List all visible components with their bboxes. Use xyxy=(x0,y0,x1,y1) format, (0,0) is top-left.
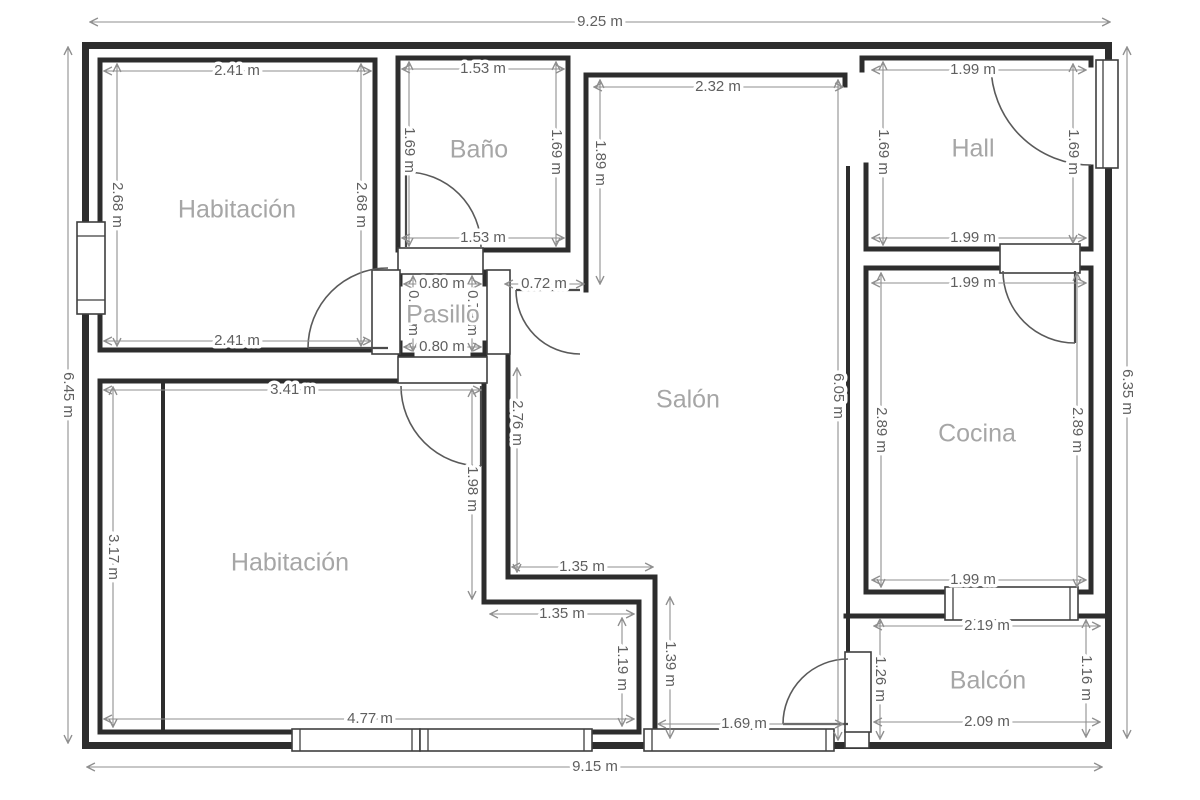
outer-wall-top xyxy=(82,42,1112,49)
dim-label-total-left: 6.45 m xyxy=(60,372,77,418)
door-cocina xyxy=(1003,271,1075,343)
window-cocina-balcon xyxy=(945,587,1078,620)
floor-plan-drawing: 9.25 m 6.45 m 6.35 m 9.15 m 2.41 m 2.68 … xyxy=(0,0,1200,800)
dim-label-hall-top: 1.99 m xyxy=(950,61,996,78)
room-label-habitacion-tl: Habitación xyxy=(178,196,296,224)
dim-label-habbl-alcove-width: 1.35 m xyxy=(539,605,585,622)
room-label-salon: Salón xyxy=(656,386,720,414)
window-bottom-left-b xyxy=(420,729,592,751)
dim-label-habtl-bottom: 2.41 m xyxy=(214,332,260,349)
dim-label-total-right: 6.35 m xyxy=(1119,369,1136,415)
dim-label-cocina-left: 2.89 m xyxy=(873,407,890,453)
dim-label-salon-lower-right: 1.39 m xyxy=(662,641,679,687)
door-frame-pasillo-habitacion-tl xyxy=(372,270,400,354)
door-frame-pasillo-bano xyxy=(398,248,483,274)
dim-label-salon-step: 1.35 m xyxy=(559,558,605,575)
wall-salon-step xyxy=(508,352,655,742)
dim-label-habbl-bottom: 4.77 m xyxy=(347,710,393,727)
room-label-pasillo: Pasillo xyxy=(406,301,480,329)
dim-label-salon-upper-left: 1.89 m xyxy=(592,140,609,186)
dim-label-habtl-right: 2.68 m xyxy=(353,182,370,228)
dim-label-habbl-right: 1.98 m xyxy=(464,466,481,512)
floor-plan-page: 9.25 m 6.45 m 6.35 m 9.15 m 2.41 m 2.68 … xyxy=(0,0,1200,800)
dim-label-habbl-top: 3.41 m xyxy=(270,381,316,398)
outer-wall-bottom xyxy=(82,742,1112,749)
dim-label-total-bottom: 9.15 m xyxy=(572,758,618,775)
dim-label-hall-left: 1.69 m xyxy=(875,129,892,175)
outer-wall-left xyxy=(82,42,89,749)
door-frame-entrance xyxy=(1096,60,1118,168)
dim-label-cocina-top: 1.99 m xyxy=(950,274,996,291)
dim-label-cocina-bottom: 1.99 m xyxy=(950,571,996,588)
dim-label-balcon-right: 1.16 m xyxy=(1078,655,1095,701)
dim-label-salon-window: 1.69 m xyxy=(721,715,767,732)
window-bottom-left-a xyxy=(292,729,420,751)
window-salon-bottom xyxy=(644,729,834,751)
room-label-bano: Baño xyxy=(450,136,508,164)
dim-label-balcon-bottom: 2.09 m xyxy=(964,713,1010,730)
door-frame-pasillo-salon xyxy=(487,270,510,354)
dim-label-balcon-top: 2.19 m xyxy=(964,617,1010,634)
dim-label-hall-bottom: 1.99 m xyxy=(950,229,996,246)
dim-label-hall-right: 1.69 m xyxy=(1065,129,1082,175)
dim-label-salon-left: 2.76 m xyxy=(509,400,526,446)
window-glass xyxy=(420,729,592,751)
dim-label-habbl-left: 3.17 m xyxy=(105,534,122,580)
room-label-habitacion-bl: Habitación xyxy=(231,549,349,577)
dim-label-pasillo-bottom: 0.80 m xyxy=(419,338,465,355)
room-label-hall: Hall xyxy=(951,135,994,163)
door-frame-pasillo-habitacion-bl xyxy=(398,357,487,383)
dim-label-total-top: 9.25 m xyxy=(577,13,623,30)
door-swing-arc xyxy=(401,386,481,466)
door-swing-arc xyxy=(1003,271,1075,343)
door-habitacion-bl xyxy=(401,386,481,466)
dim-label-habtl-left: 2.68 m xyxy=(109,182,126,228)
dim-label-balcon-left: 1.26 m xyxy=(872,656,889,702)
dim-label-cocina-right: 2.89 m xyxy=(1069,407,1086,453)
door-swing-arc xyxy=(516,290,580,354)
dim-label-pasillo-top: 0.80 m xyxy=(419,275,465,292)
window-glass xyxy=(945,587,1078,620)
door-frame-balcon xyxy=(845,652,871,732)
window-glass xyxy=(644,729,834,751)
dim-label-bano-top: 1.53 m xyxy=(460,60,506,77)
dim-label-salon-top: 2.32 m xyxy=(695,78,741,95)
dim-label-bano-left: 1.69 m xyxy=(401,127,418,173)
door-frame-hall-cocina xyxy=(1000,244,1080,273)
wall-salon-top xyxy=(586,75,845,290)
dim-label-bano-right: 1.69 m xyxy=(548,129,565,175)
dim-label-habbl-alcove-height: 1.19 m xyxy=(614,645,631,691)
dim-label-habtl-top: 2.41 m xyxy=(214,62,260,79)
dim-label-salon-right: 6.05 m xyxy=(830,373,847,419)
door-salon xyxy=(516,290,580,354)
room-label-balcon: Balcón xyxy=(950,667,1026,695)
room-label-cocina: Cocina xyxy=(938,420,1016,448)
window-glass xyxy=(292,729,420,751)
dim-label-bano-bottom: 1.53 m xyxy=(460,229,506,246)
window-left-wall xyxy=(77,222,105,314)
dim-label-salon-doorway: 0.72 m xyxy=(521,275,567,292)
wall-habitacion-bl xyxy=(100,381,639,732)
